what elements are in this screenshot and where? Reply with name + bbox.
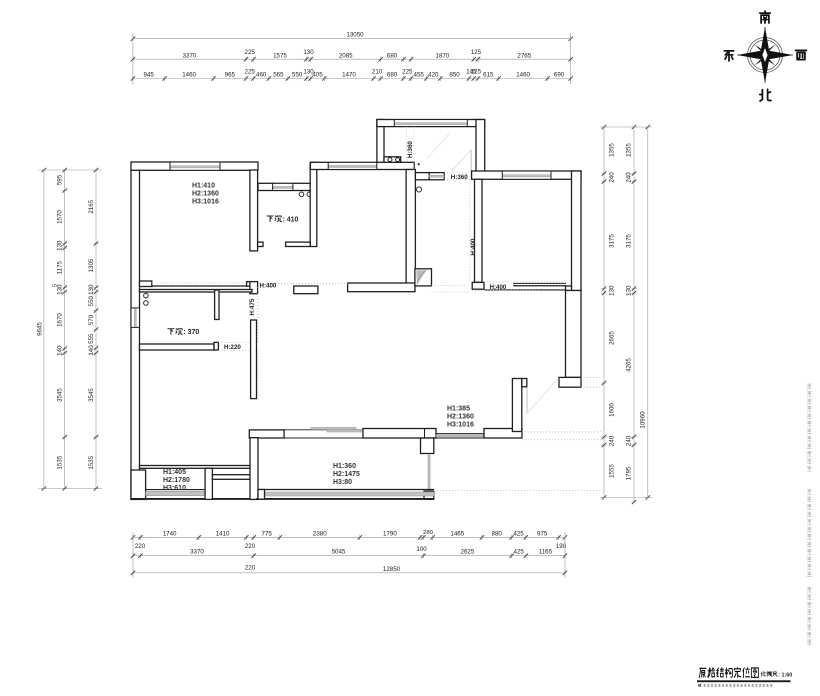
svg-text:1465: 1465 (450, 530, 464, 537)
svg-text:H2:1780: H2:1780 (163, 477, 190, 484)
svg-text:1460: 1460 (182, 72, 196, 79)
svg-text:: 410: : 410 (283, 216, 299, 223)
svg-text:1535: 1535 (57, 455, 64, 469)
svg-text:680: 680 (387, 52, 398, 59)
svg-text:240: 240 (626, 172, 633, 183)
svg-text:405: 405 (312, 72, 323, 79)
svg-text:1165: 1165 (539, 549, 553, 556)
svg-text:1600: 1600 (609, 403, 616, 417)
svg-text:1470: 1470 (342, 72, 356, 79)
svg-text:1740: 1740 (163, 530, 177, 537)
svg-text:H:400: H:400 (470, 238, 477, 255)
svg-text:455: 455 (414, 72, 425, 79)
svg-text:570: 570 (88, 314, 95, 325)
svg-text:H2:1360: H2:1360 (447, 414, 474, 421)
svg-text:945: 945 (144, 72, 155, 79)
svg-text:H1:385: H1:385 (447, 406, 470, 413)
svg-text:H1:405: H1:405 (163, 469, 186, 476)
svg-text:1570: 1570 (57, 210, 64, 224)
svg-text:225: 225 (245, 69, 256, 76)
svg-text:2765: 2765 (517, 52, 531, 59)
svg-text:H3:1016: H3:1016 (447, 422, 474, 429)
svg-text:130: 130 (57, 240, 64, 251)
svg-text:1535: 1535 (88, 455, 95, 469)
svg-text:130: 130 (88, 284, 95, 295)
svg-text:280: 280 (423, 530, 433, 536)
svg-text:3370: 3370 (190, 549, 204, 556)
svg-text:H:400: H:400 (490, 284, 507, 291)
svg-text:220: 220 (245, 543, 256, 550)
svg-text:1355: 1355 (609, 143, 616, 157)
svg-text:975: 975 (537, 530, 548, 537)
svg-text:460: 460 (256, 72, 267, 79)
svg-text:1460: 1460 (516, 72, 530, 79)
svg-text:H1:410: H1:410 (192, 182, 215, 189)
svg-text:H:360: H:360 (451, 174, 468, 181)
svg-text:12850: 12850 (383, 566, 401, 573)
svg-text:125: 125 (471, 69, 482, 76)
svg-text:: 370: : 370 (183, 329, 199, 336)
svg-text:425: 425 (514, 549, 525, 556)
svg-text:1305: 1305 (88, 258, 95, 272)
svg-text:1795: 1795 (626, 466, 633, 480)
svg-text:2085: 2085 (339, 52, 353, 59)
svg-text:1575: 1575 (273, 52, 287, 59)
svg-text:965: 965 (225, 72, 236, 79)
svg-text:225: 225 (402, 69, 413, 76)
svg-text:420: 420 (428, 72, 439, 79)
svg-text:615: 615 (483, 72, 494, 79)
svg-text:240: 240 (609, 172, 616, 183)
svg-text:2380: 2380 (313, 530, 327, 537)
svg-text:H3:610: H3:610 (163, 485, 186, 492)
svg-text:H:360: H:360 (407, 141, 414, 158)
svg-text:1355: 1355 (626, 143, 633, 157)
svg-text:210: 210 (372, 69, 383, 76)
svg-text:140: 140 (88, 345, 95, 356)
svg-text:H3:80: H3:80 (333, 479, 352, 486)
svg-text:125: 125 (471, 49, 482, 56)
svg-text:1870: 1870 (436, 52, 450, 59)
svg-text:1790: 1790 (383, 530, 397, 537)
svg-text:240: 240 (626, 435, 633, 446)
svg-text:H:220: H:220 (224, 344, 241, 351)
svg-text:2165: 2165 (88, 199, 95, 213)
svg-text:H:400: H:400 (260, 282, 277, 289)
svg-text:225: 225 (245, 49, 256, 56)
svg-text:5: 5 (53, 284, 59, 287)
svg-text:555: 555 (88, 333, 95, 344)
svg-text:H:475: H:475 (249, 298, 256, 315)
svg-text:2665: 2665 (609, 331, 616, 345)
svg-text:4265: 4265 (626, 358, 633, 372)
svg-text:3545: 3545 (57, 388, 64, 402)
svg-text:140: 140 (57, 345, 64, 356)
svg-text:880: 880 (492, 530, 503, 537)
svg-text:550: 550 (292, 72, 303, 79)
svg-text:595: 595 (57, 174, 64, 185)
svg-text:H3:1016: H3:1016 (192, 198, 219, 205)
svg-text:3175: 3175 (609, 234, 616, 248)
svg-text:2625: 2625 (461, 549, 475, 556)
svg-text:775: 775 (262, 530, 273, 537)
svg-text:5045: 5045 (332, 549, 346, 556)
svg-text:130: 130 (303, 49, 314, 56)
svg-text:565: 565 (273, 72, 284, 79)
svg-text:13050: 13050 (346, 32, 364, 39)
svg-text:1175: 1175 (57, 260, 64, 274)
svg-text:690: 690 (554, 72, 565, 79)
svg-text:220: 220 (135, 543, 146, 550)
svg-text:100: 100 (416, 546, 427, 553)
svg-text:550: 550 (88, 295, 95, 306)
svg-text:1670: 1670 (57, 313, 64, 327)
svg-text:H1:360: H1:360 (333, 463, 356, 470)
svg-text:130: 130 (609, 285, 616, 296)
svg-text:3370: 3370 (183, 52, 197, 59)
svg-text:3545: 3545 (88, 388, 95, 402)
svg-text:H2:1475: H2:1475 (333, 471, 360, 478)
svg-text:: 1:60: : 1:60 (778, 672, 792, 678)
svg-text:425: 425 (513, 530, 524, 537)
svg-text:240: 240 (609, 435, 616, 446)
svg-text:850: 850 (449, 72, 460, 79)
svg-text:H2:1360: H2:1360 (192, 190, 219, 197)
svg-text:1410: 1410 (216, 530, 230, 537)
svg-text:680: 680 (387, 72, 398, 79)
svg-text:9645: 9645 (37, 322, 44, 336)
svg-text:1555: 1555 (609, 464, 616, 478)
svg-text:220: 220 (245, 565, 256, 572)
svg-text:3175: 3175 (626, 234, 633, 248)
svg-text:10960: 10960 (640, 411, 647, 429)
svg-text:130: 130 (626, 285, 633, 296)
